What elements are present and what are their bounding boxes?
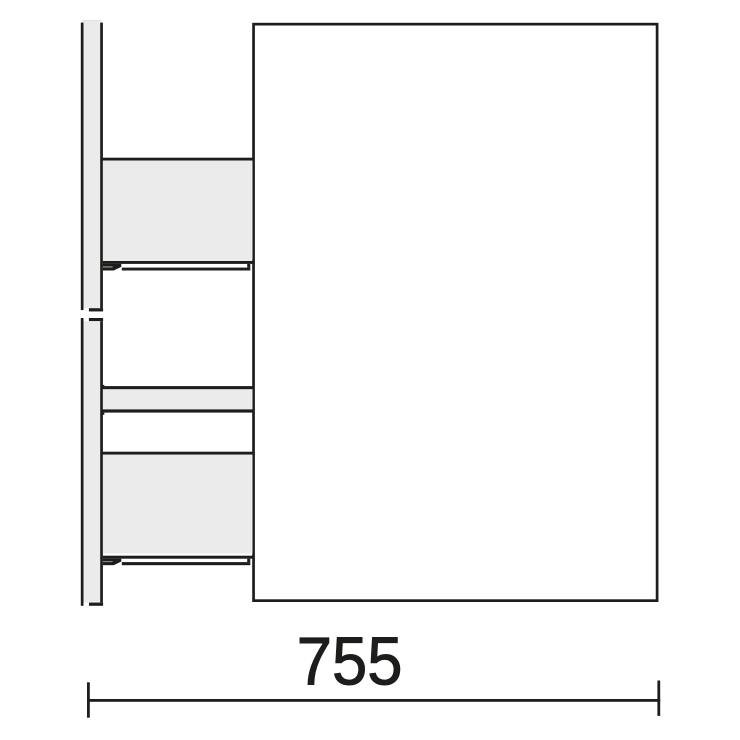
svg-text:755: 755 [297,623,403,699]
